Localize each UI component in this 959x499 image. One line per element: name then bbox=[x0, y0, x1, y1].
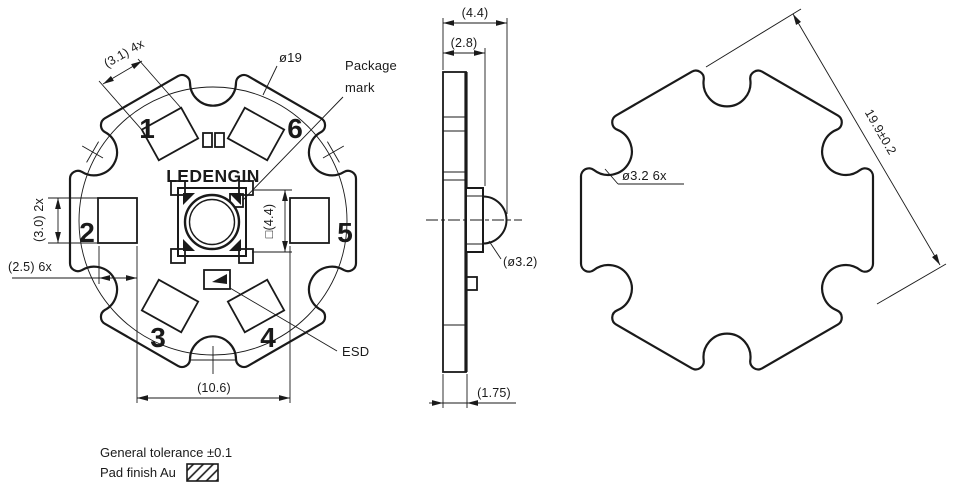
dim-text-pad-height: (3.0) 2x bbox=[32, 197, 46, 242]
dim-text-dia19: ø19 bbox=[279, 50, 302, 65]
dim-text-pad-width: (2.5) 6x bbox=[8, 260, 53, 274]
pad-finish-hatch-swatch bbox=[187, 464, 218, 481]
package-mark-label-1: Package bbox=[345, 58, 397, 73]
dim-text-total-thickness: (4.4) bbox=[462, 6, 489, 20]
dim-text-body-thickness: (2.8) bbox=[451, 36, 478, 50]
lens-outer bbox=[185, 195, 239, 249]
dim-text-board-thickness: (1.75) bbox=[477, 386, 511, 400]
dim-text-package-size: □(4.4) bbox=[262, 204, 276, 238]
esd-label: ESD bbox=[342, 344, 369, 359]
pad-number-1: 1 bbox=[139, 113, 155, 144]
general-tolerance-note: General tolerance ±0.1 bbox=[100, 445, 232, 460]
dim-text-lens-dia: (ø3.2) bbox=[503, 255, 538, 269]
pad-finish-note: Pad finish Au bbox=[100, 465, 176, 480]
brand-text: LEDENGIN bbox=[166, 166, 260, 186]
pad-number-5: 5 bbox=[337, 217, 353, 248]
pad-number-4: 4 bbox=[260, 322, 276, 353]
package-mark-label-2: mark bbox=[345, 80, 375, 95]
technical-drawing-page: 1 2 3 4 5 6 LEDENGIN bbox=[0, 0, 959, 499]
led-package bbox=[171, 181, 253, 263]
pad-number-6: 6 bbox=[287, 113, 303, 144]
led-star-pcb-drawing: 1 2 3 4 5 6 LEDENGIN bbox=[0, 0, 959, 499]
dim-text-pad-row-span: (10.6) bbox=[197, 381, 231, 395]
pad-number-3: 3 bbox=[150, 322, 166, 353]
dim-text-notch-dia: ø3.2 6x bbox=[622, 168, 667, 183]
